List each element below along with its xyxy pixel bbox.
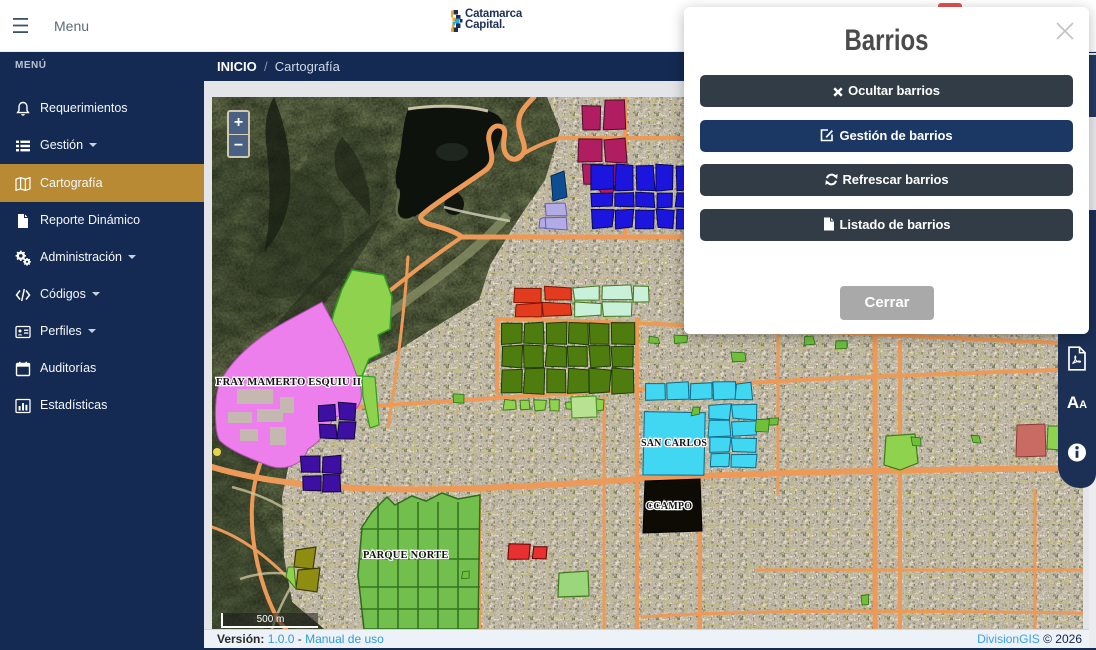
svg-text:CCAMPO: CCAMPO xyxy=(646,501,692,512)
svg-text:SAN CARLOS: SAN CARLOS xyxy=(641,438,707,449)
svg-text:FRAY MAMERTO ESQUIU II: FRAY MAMERTO ESQUIU II xyxy=(216,377,361,388)
svg-text:PARQUE NORTE: PARQUE NORTE xyxy=(363,550,449,561)
